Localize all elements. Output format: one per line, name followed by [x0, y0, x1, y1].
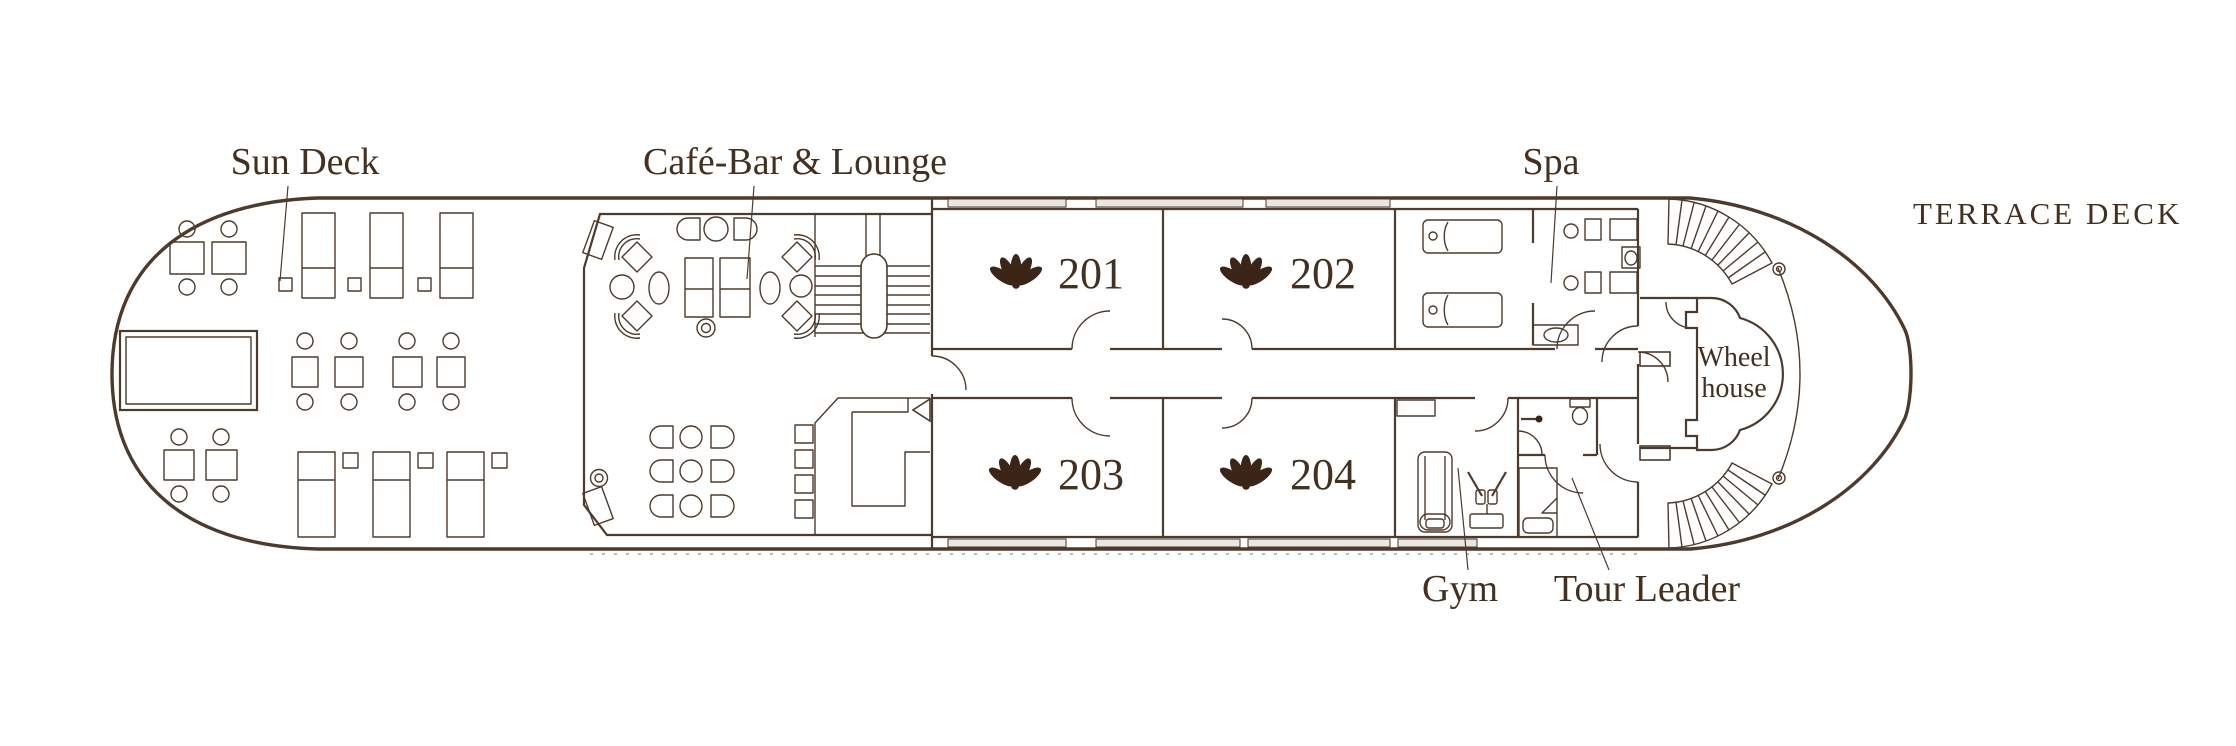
tour-leader-label: Tour Leader: [1554, 568, 1741, 610]
bar-stool: [795, 425, 813, 443]
cabin-204: 204: [1217, 450, 1356, 499]
cabin-block: 201 202 203 204: [932, 198, 1638, 549]
curved-staircase-bottom: [1668, 463, 1785, 548]
scallop-shell-icon: [1217, 455, 1274, 490]
hull-outline: [112, 198, 1911, 554]
window-strip: [948, 539, 1066, 547]
floor-lamp-icon: [591, 470, 608, 487]
cabin-201-number: 201: [1058, 249, 1124, 298]
bow-walkway-railing: [1778, 268, 1800, 479]
cabin-202-door-arc: [1222, 319, 1252, 349]
gym-area: [1397, 398, 1508, 532]
deck-plan-diagram: 201 202 203 204: [0, 0, 2236, 746]
bathroom-door-arc: [1545, 455, 1583, 493]
deck-box: [583, 487, 613, 526]
cafe-bar-lounge-label: Café-Bar & Lounge: [643, 141, 947, 183]
bar-stool: [795, 500, 813, 518]
sun-loungers-top: [279, 213, 473, 298]
wheelhouse-door-arc: [1666, 302, 1692, 328]
spa-cabinet: [1585, 219, 1601, 240]
single-bed: [1519, 468, 1557, 537]
treadmill-icon: [1418, 452, 1452, 532]
cabin-203-number: 203: [1058, 450, 1124, 499]
window-strip: [1096, 539, 1240, 547]
weight-machine-icon: [1468, 472, 1506, 528]
door-threshold: [1640, 352, 1670, 366]
whirlpool: [120, 331, 257, 410]
spa-label: Spa: [1523, 141, 1580, 183]
cabin-201-door-arc: [1072, 311, 1110, 349]
gym-label: Gym: [1422, 568, 1498, 610]
armchair-cluster-right: [760, 235, 819, 338]
gym-cabinet: [1397, 400, 1435, 416]
deck-plan-page: 201 202 203 204: [0, 0, 2236, 746]
gym-door-arc: [1475, 398, 1508, 431]
lounge-door-leaf: [913, 399, 930, 421]
lobby-walls: [1640, 298, 1697, 448]
towel-bar-icon: [1521, 416, 1543, 423]
cafe-bar-lounge-area: [583, 214, 966, 535]
spa-stool: [1564, 276, 1578, 290]
massage-bed: [1423, 293, 1502, 327]
tour-leader-door-arc: [1600, 444, 1638, 482]
staircase-main: [815, 214, 930, 338]
spa-basin: [1533, 325, 1578, 345]
spa-leader-line: [1551, 186, 1557, 283]
sofa-pair: [685, 258, 750, 337]
cabin-202-number: 202: [1290, 249, 1356, 298]
cabin-204-door-arc: [1222, 398, 1252, 428]
toilet-icon: [1570, 399, 1590, 425]
lounge-door-arc: [932, 356, 966, 390]
deck-title: TERRACE DECK: [1913, 196, 2182, 231]
window-strip: [1248, 539, 1390, 547]
cabin-203-door-arc: [1072, 398, 1110, 436]
sun-loungers-bottom: [298, 452, 507, 537]
scallop-shell-icon: [1217, 254, 1274, 289]
tour-leader-leader-line: [1572, 478, 1609, 570]
scallop-shell-icon: [986, 455, 1043, 490]
bar-counter: [795, 398, 930, 535]
cafe-chair-grid: [650, 426, 734, 517]
cabin-203: 203: [986, 450, 1124, 499]
bar-stool: [795, 450, 813, 468]
deck-box: [583, 221, 613, 260]
curved-staircase-top: [1668, 199, 1785, 284]
wheel-house-label-line2: house: [1701, 373, 1766, 404]
wheel-house-label-line1: Wheel: [1697, 342, 1770, 373]
spa-area: [1423, 209, 1640, 349]
massage-bed: [1423, 220, 1502, 253]
sun-deck-area: [120, 213, 507, 537]
spa-stool: [1564, 224, 1578, 238]
spa-door-arc: [1557, 311, 1595, 349]
cabin-202: 202: [1217, 249, 1356, 298]
sun-deck-label: Sun Deck: [231, 141, 380, 183]
shower-arc: [1518, 431, 1542, 455]
cabin-201: 201: [987, 249, 1124, 298]
spa-cabinet: [1585, 272, 1601, 293]
bar-stool: [795, 475, 813, 493]
tour-leader-area: [1518, 398, 1597, 537]
table-group-bottom-left: [164, 429, 237, 502]
stair-handrail: [861, 254, 887, 338]
window-strip: [948, 199, 1066, 207]
cabin-204-number: 204: [1290, 450, 1356, 499]
window-strip: [1096, 199, 1243, 207]
window-strip: [1266, 199, 1390, 207]
gym-leader-line: [1458, 468, 1468, 570]
armchair-cluster-left: [610, 235, 669, 338]
corridor-end-door-arc: [1602, 326, 1638, 362]
table-group-middle: [292, 333, 465, 410]
spa-cabinet: [1610, 219, 1637, 240]
lounge-seating-top: [677, 217, 757, 241]
spa-cabinet: [1610, 272, 1637, 293]
scallop-shell-icon: [987, 254, 1044, 289]
table-group-top-left: [170, 221, 246, 295]
wheel-house: Wheel house: [1686, 298, 1783, 450]
